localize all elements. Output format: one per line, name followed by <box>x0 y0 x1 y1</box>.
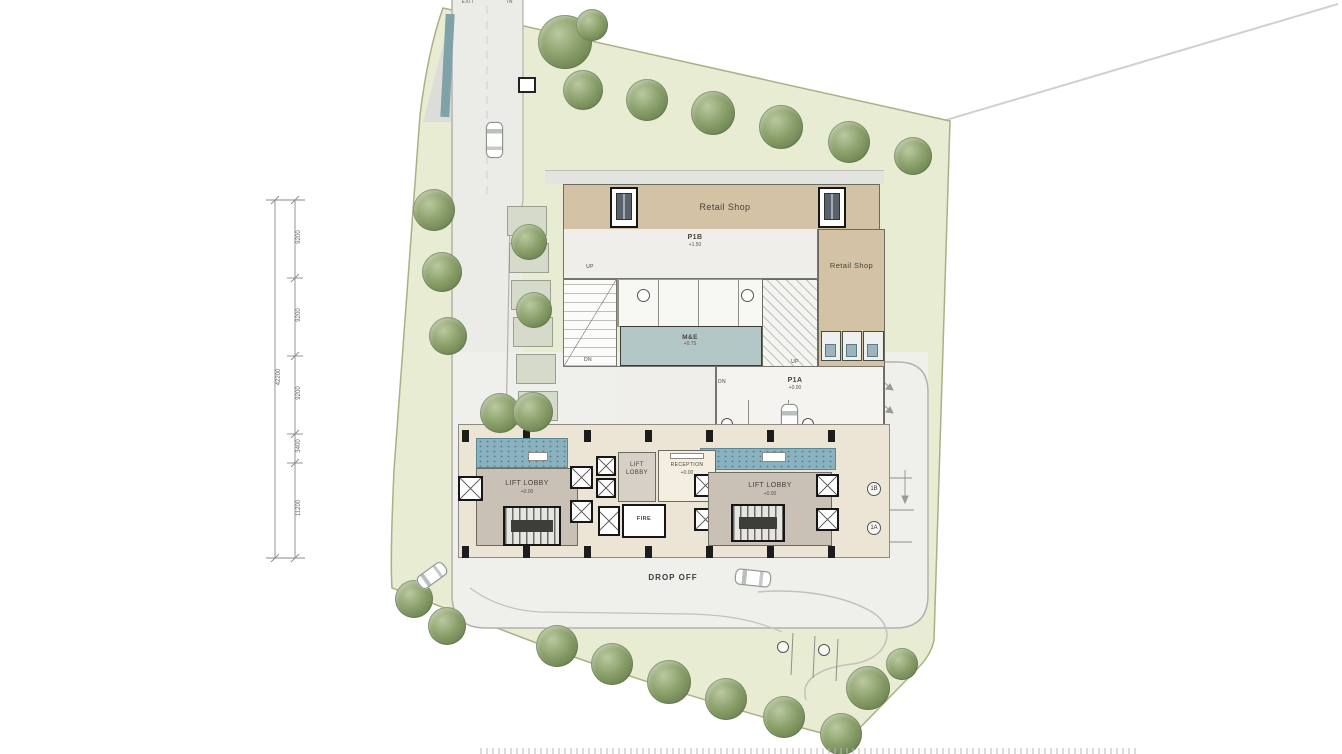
up-stair-label: UP <box>580 265 600 271</box>
tree-icon <box>428 607 466 645</box>
car-icon <box>486 122 503 158</box>
up-ramp-label: UP <box>785 360 805 366</box>
toilet-stall <box>821 331 841 361</box>
p1a-level: +0.00 <box>765 386 825 392</box>
dimension-segment: 9200 <box>296 363 302 423</box>
wc-fixture-icon <box>867 344 878 357</box>
dimension-segment: 3400 <box>296 416 302 476</box>
wc-fixture-icon <box>825 344 836 357</box>
stall-marker <box>637 289 650 302</box>
offsite-boundary-line <box>946 4 1338 120</box>
hedge-planter <box>516 354 556 384</box>
site-plan-canvas: Retail Shop Retail Shop P1B +1.50 UP M&E… <box>0 0 1342 754</box>
tree-icon <box>413 189 455 231</box>
me-room-level: +0.75 <box>660 342 720 348</box>
tree-icon <box>886 648 918 680</box>
lift-lobby-right-label: LIFT LOBBY <box>722 482 818 490</box>
dimension-total: 42200 <box>276 347 282 407</box>
guard-house <box>518 77 536 93</box>
fire-room-label: FIRE <box>624 516 664 522</box>
lift-lobby-mid-label-1: LIFT <box>620 462 654 469</box>
lift-shaft <box>596 456 616 476</box>
staircase <box>563 279 617 367</box>
tree-icon <box>576 9 608 41</box>
stall-marker-1a: 1A <box>867 521 881 535</box>
elevator-core <box>610 187 638 228</box>
tree-icon <box>429 317 467 355</box>
reception-label: RECEPTION <box>660 463 714 469</box>
stall-marker-1b: 1B <box>867 482 881 496</box>
tree-icon <box>705 678 747 720</box>
elevator-core <box>818 187 846 228</box>
tree-icon <box>422 252 462 292</box>
tree-icon <box>511 224 547 260</box>
staircase <box>503 506 561 546</box>
drop-off-label: DROP OFF <box>613 573 733 582</box>
sidewalk-strip <box>545 170 884 184</box>
cropped-caption-remnant <box>480 748 1140 754</box>
dimension-segment: 9200 <box>296 207 302 267</box>
lift-lobby-right-level: +0.00 <box>722 492 818 498</box>
tree-icon <box>591 643 633 685</box>
retail-shop-right-label: Retail Shop <box>820 262 883 271</box>
tree-icon <box>846 666 890 710</box>
staircase <box>731 504 785 542</box>
tree-icon <box>828 121 870 163</box>
stall-marker <box>741 289 754 302</box>
elevator-cab-icon <box>616 193 633 220</box>
lift-lobby-left-level: +0.00 <box>482 490 572 496</box>
stair-core <box>511 520 552 533</box>
tree-icon <box>894 137 932 175</box>
lift-lobby-mid <box>618 452 656 502</box>
wc-fixture-icon <box>846 344 857 357</box>
toilet-stall <box>863 331 884 361</box>
p1a-label: P1A <box>765 377 825 385</box>
water-feature-left <box>476 438 568 468</box>
tree-icon <box>759 105 803 149</box>
toilet-stall <box>842 331 862 361</box>
escalator-room <box>762 279 818 367</box>
lift-lobby-left-label: LIFT LOBBY <box>482 480 572 488</box>
exit-gate-label: EXIT <box>455 0 481 6</box>
p1b-level: +1.50 <box>660 243 730 249</box>
stall-marker <box>818 644 830 656</box>
lift-lobby-mid-label-2: LOBBY <box>620 470 654 477</box>
column-row <box>462 546 888 558</box>
tree-icon <box>691 91 735 135</box>
stall-marker <box>777 641 789 653</box>
lift-shaft <box>598 506 620 536</box>
in-gate-label: IN <box>500 0 520 6</box>
stair-core <box>739 517 777 529</box>
dimension-segment: 11200 <box>296 478 302 538</box>
pool-label-tag <box>762 452 786 462</box>
tree-icon <box>563 70 603 110</box>
tree-icon <box>513 392 553 432</box>
lift-shaft <box>570 466 593 489</box>
lift-shaft <box>458 476 483 501</box>
tree-icon <box>647 660 691 704</box>
lift-shaft <box>596 478 616 498</box>
p1b-label: P1B <box>660 234 730 242</box>
lift-shaft <box>570 500 593 523</box>
tree-icon <box>626 79 668 121</box>
tree-icon <box>536 625 578 667</box>
dimension-segment: 9200 <box>296 285 302 345</box>
elevator-cab-icon <box>824 193 841 220</box>
dn-ramp-left-label: DN <box>578 358 598 364</box>
lift-shaft <box>816 508 839 531</box>
tree-icon <box>516 292 552 328</box>
retail-shop-top-label: Retail Shop <box>640 202 810 212</box>
pool-label-tag <box>528 452 548 461</box>
tree-icon <box>763 696 805 738</box>
reception-desk <box>670 453 704 459</box>
lift-shaft <box>816 474 839 497</box>
